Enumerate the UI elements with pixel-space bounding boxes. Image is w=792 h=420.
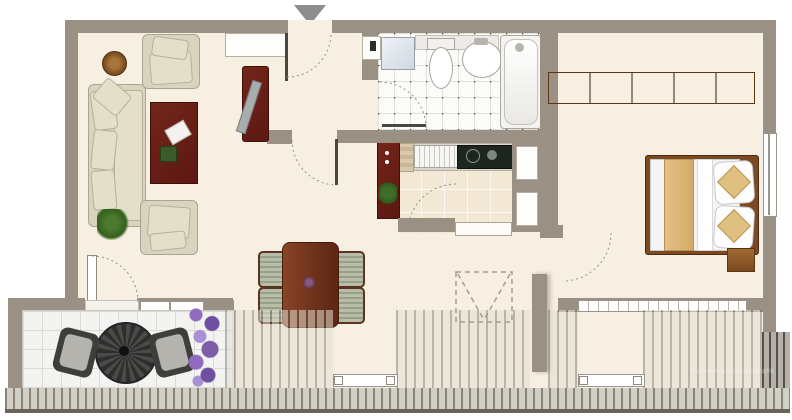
balcony-railing-section (643, 310, 762, 390)
sofa-pillow (90, 169, 117, 211)
cabinet-knob-icon (385, 160, 389, 164)
wall-top-right (332, 20, 776, 33)
terrace-window-mullion (169, 301, 171, 310)
toilet-bowl (429, 47, 453, 89)
bathtub-basin (504, 39, 538, 125)
bed-sheet-fold (697, 159, 713, 251)
entry-wall-niche (225, 33, 287, 57)
pantry-strip (399, 143, 414, 172)
bedroom-east-window (763, 133, 777, 217)
wall-top-left (65, 20, 288, 33)
wall-terrace-west (8, 298, 22, 390)
wall-bedroom-west (540, 33, 558, 225)
nightstand (727, 248, 755, 272)
kitchen-niche-shelf (516, 146, 538, 180)
round-side-table (102, 51, 127, 76)
bathtub-faucet-icon (515, 43, 524, 52)
wall-hall-stub (267, 130, 292, 144)
floor-plant (97, 209, 129, 240)
wall-kitchen-south (398, 218, 455, 232)
terrace-door-panel (87, 255, 97, 303)
balcony-post (532, 274, 547, 372)
perimeter-fence (5, 388, 790, 413)
wardrobe (548, 72, 755, 104)
floor-plan: mustermann@infografik (0, 0, 792, 420)
gate-bar-cap-icon (386, 376, 395, 385)
entrance-door-panel (285, 33, 288, 81)
watermark: mustermann@infografik (690, 368, 775, 375)
bed-blanket (664, 159, 694, 251)
bathroom-door-panel (382, 124, 426, 127)
cooktop-burner-icon (466, 149, 480, 163)
cabinet-knob-icon (385, 151, 389, 155)
bathroom-niche-fixture-icon (370, 41, 376, 51)
gate-bar-cap-icon (633, 376, 642, 385)
balcony-railing-section (548, 310, 578, 390)
balcony-railing-section (225, 310, 333, 390)
bathroom-sink (462, 41, 502, 78)
hall-door-panel (335, 139, 338, 185)
table-centerpiece-icon (303, 276, 315, 289)
kitchen-niche-shelf (516, 192, 538, 226)
cabinet-plant-icon (379, 180, 397, 206)
wall-bathroom-south (337, 130, 541, 143)
entrance-opening (288, 20, 332, 33)
wall-left (65, 20, 78, 298)
gate-bar-cap-icon (579, 376, 588, 385)
sink-faucet-icon (474, 38, 488, 45)
cooktop-pot-icon (487, 150, 497, 160)
kitchen-door-threshold (455, 222, 512, 236)
terrace-table-center-icon (119, 346, 129, 356)
sofa-pillow (90, 129, 118, 171)
fence-right-column (762, 332, 790, 388)
coffee-table-plant-icon (160, 146, 177, 162)
balcony-railing-section (396, 310, 530, 390)
kitchen-sink-unit (414, 145, 458, 168)
bedroom-east-window-mullion (768, 133, 770, 215)
wall-bedroom-door-stub (540, 225, 563, 238)
washing-machine (381, 37, 415, 70)
lavender-planter (184, 302, 224, 388)
armchair-bottom-pillow (149, 230, 187, 252)
gate-bar-cap-icon (334, 376, 343, 385)
